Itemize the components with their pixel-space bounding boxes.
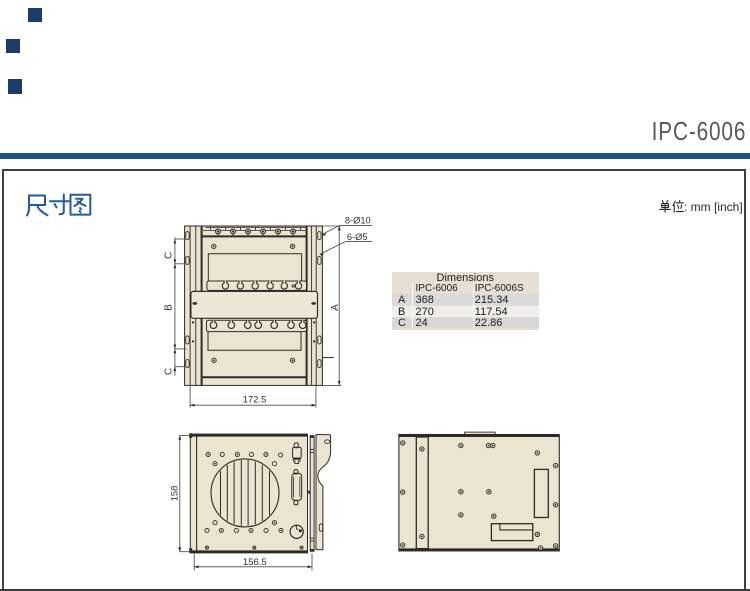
svg-text:156.5: 156.5 bbox=[243, 557, 267, 568]
svg-text:B: B bbox=[164, 304, 175, 311]
svg-text:8-Ø10: 8-Ø10 bbox=[345, 216, 371, 226]
svg-text:158: 158 bbox=[169, 486, 180, 502]
svg-text:C: C bbox=[164, 368, 175, 375]
svg-text:172.5: 172.5 bbox=[243, 395, 267, 406]
svg-text:6-Ø5: 6-Ø5 bbox=[347, 232, 368, 242]
svg-text:C: C bbox=[164, 252, 175, 259]
svg-text:A: A bbox=[330, 304, 341, 311]
